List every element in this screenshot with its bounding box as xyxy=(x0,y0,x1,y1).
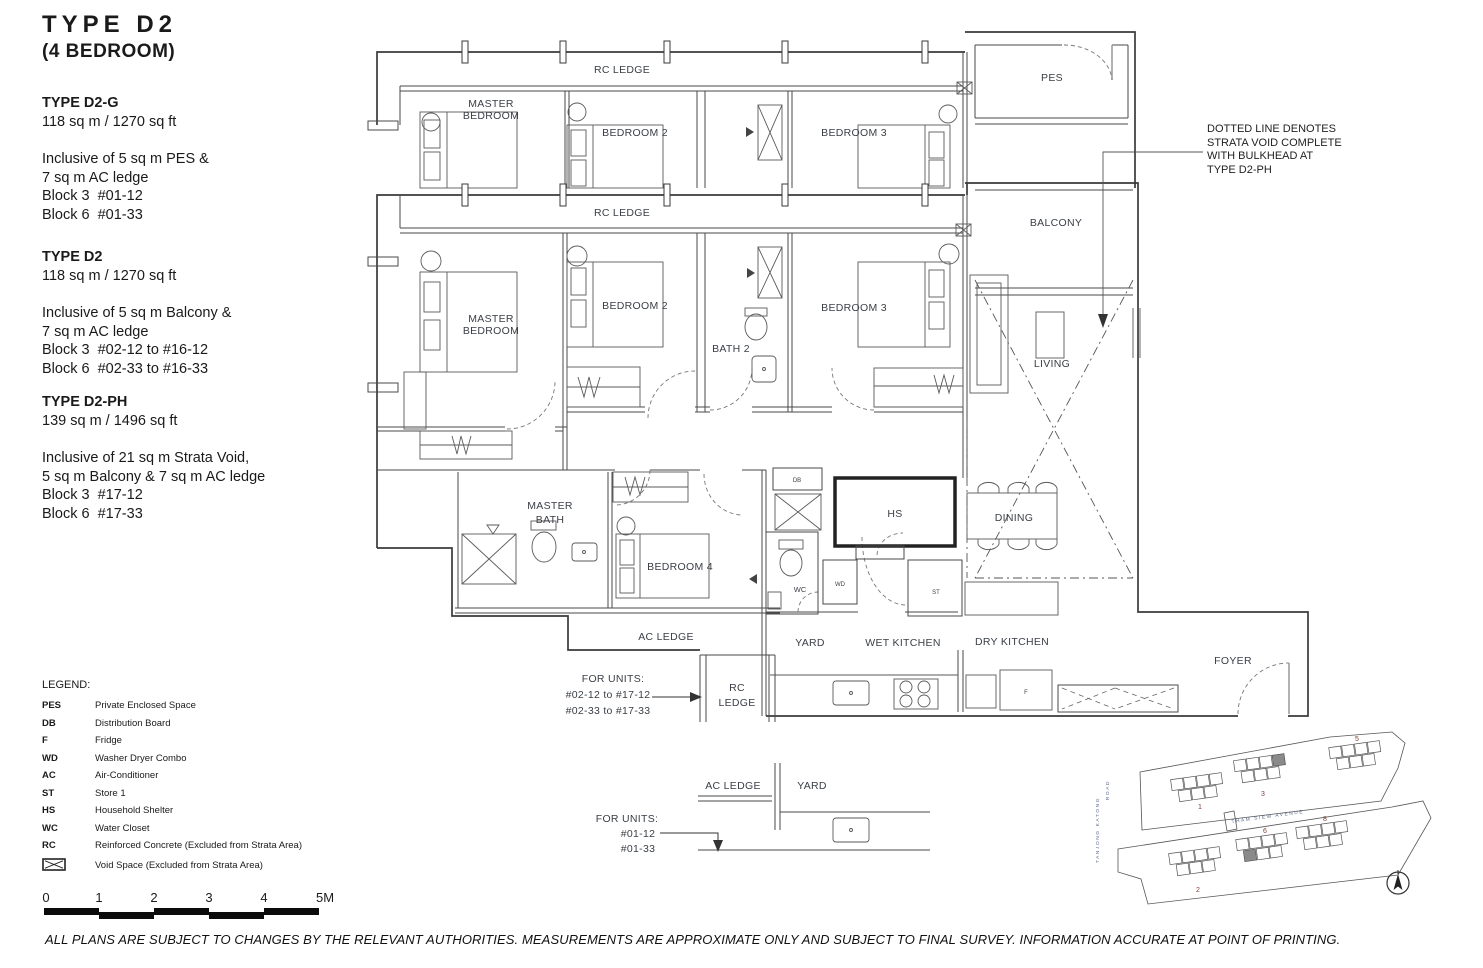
site-block-2 xyxy=(1169,847,1223,877)
room-label-bedroom2: BEDROOM 2 xyxy=(602,127,668,139)
units-note-mid: #02-12 to #17-12 xyxy=(566,689,651,701)
st-box xyxy=(908,560,962,616)
block-number: 5 xyxy=(1355,736,1359,743)
room-label-st: ST xyxy=(932,590,940,596)
room-label-pes: PES xyxy=(1041,72,1063,84)
floorplan-page: TYPE D2 (4 BEDROOM) TYPE D2-G 118 sq m /… xyxy=(0,0,1483,968)
floorplan-drawing: RC LEDGE MASTER BEDROOM BEDROOM 2 BEDROO… xyxy=(0,0,1483,968)
void-space-icon xyxy=(775,494,821,530)
room-label-master: BEDROOM xyxy=(463,325,519,337)
room-label-db: DB xyxy=(793,478,801,484)
wc-room xyxy=(766,532,818,614)
room-label-rc-ledge2: LEDGE xyxy=(718,697,755,709)
room-label-master-bath: MASTER xyxy=(527,500,573,512)
block-number: 3 xyxy=(1261,791,1265,798)
door-marker-icon xyxy=(746,127,754,137)
master-bath-fixtures xyxy=(462,521,597,584)
site-plan: THAM SIEW AVENUE TANJONG KATONG ROAD 1 3… xyxy=(1095,732,1431,904)
units-note-bottom: #01-33 xyxy=(621,843,656,855)
room-label-wc: WC xyxy=(794,585,807,594)
plan-top-strip: RC LEDGE MASTER BEDROOM BEDROOM 2 BEDROO… xyxy=(368,32,1135,188)
units-note-bottom: #01-12 xyxy=(621,828,656,840)
room-label-living: LIVING xyxy=(1034,358,1070,370)
site-block-8 xyxy=(1296,821,1350,851)
room-label-bedroom4: BEDROOM 4 xyxy=(647,561,713,573)
plan-main: RC LEDGE MASTER BEDROOM BEDROOM 2 BATH 2… xyxy=(368,152,1308,722)
site-block-5 xyxy=(1329,741,1383,771)
units-note-bottom: FOR UNITS: xyxy=(596,813,659,825)
room-label-dry-kitchen: DRY KITCHEN xyxy=(975,636,1049,648)
room-label-bedroom3: BEDROOM 3 xyxy=(821,127,887,139)
block-number: 6 xyxy=(1263,828,1267,835)
room-label-master: MASTER xyxy=(468,98,514,110)
block-number: 8 xyxy=(1323,816,1327,823)
room-label-master: MASTER xyxy=(468,313,514,325)
living-furniture xyxy=(970,275,1064,393)
wc-fixtures xyxy=(768,540,803,609)
block-number: 2 xyxy=(1196,887,1200,894)
road-label-tanjong-katong: TANJONG KATONG xyxy=(1095,797,1101,863)
site-block-6 xyxy=(1236,833,1290,863)
room-label-yard: YARD xyxy=(797,780,827,792)
room-label-balcony: BALCONY xyxy=(1030,217,1082,229)
site-block-3 xyxy=(1233,754,1287,784)
plan-fragment-ground: AC LEDGE YARD FOR UNITS: #01-12 #01-33 xyxy=(596,763,930,855)
room-label-rc-ledge: RC LEDGE xyxy=(594,207,650,219)
room-label-wet-kitchen: WET KITCHEN xyxy=(865,637,940,649)
north-compass-icon xyxy=(1387,870,1409,894)
void-space-icon xyxy=(957,82,972,94)
room-label-hs: HS xyxy=(887,508,902,520)
room-label-bedroom3: BEDROOM 3 xyxy=(821,302,887,314)
bedroom4-furniture xyxy=(613,472,709,598)
void-cabinet xyxy=(1058,685,1178,712)
room-label-bedroom2: BEDROOM 2 xyxy=(602,300,668,312)
room-label-rc-ledge2: RC xyxy=(729,682,745,694)
room-label-foyer: FOYER xyxy=(1214,655,1252,667)
bath2-fixtures xyxy=(745,247,782,382)
arrow-down-icon xyxy=(1098,314,1108,328)
units-note-mid: FOR UNITS: xyxy=(582,673,645,685)
room-label-dining: DINING xyxy=(995,512,1034,524)
units-note-mid: #02-33 to #17-33 xyxy=(566,705,651,717)
room-label-f: F xyxy=(1024,690,1028,696)
door-arcs xyxy=(507,368,1289,714)
block-number: 1 xyxy=(1198,804,1202,811)
room-label-wd: WD xyxy=(835,582,846,588)
room-label-yard: YARD xyxy=(795,637,825,649)
road-label-tham-siew: THAM SIEW AVENUE xyxy=(1231,809,1304,825)
room-label-bath2: BATH 2 xyxy=(712,343,750,355)
room-label-master: BEDROOM xyxy=(463,110,519,122)
room-label-rc-ledge: RC LEDGE xyxy=(594,64,650,76)
door-marker-icon xyxy=(749,574,757,584)
door-marker-icon xyxy=(747,268,755,278)
room-label-ac-ledge: AC LEDGE xyxy=(638,631,694,643)
site-block-1 xyxy=(1171,773,1225,803)
room-label-master-bath: BATH xyxy=(536,514,564,526)
road-label-road: ROAD xyxy=(1105,780,1111,800)
room-label-ac-ledge: AC LEDGE xyxy=(705,780,761,792)
